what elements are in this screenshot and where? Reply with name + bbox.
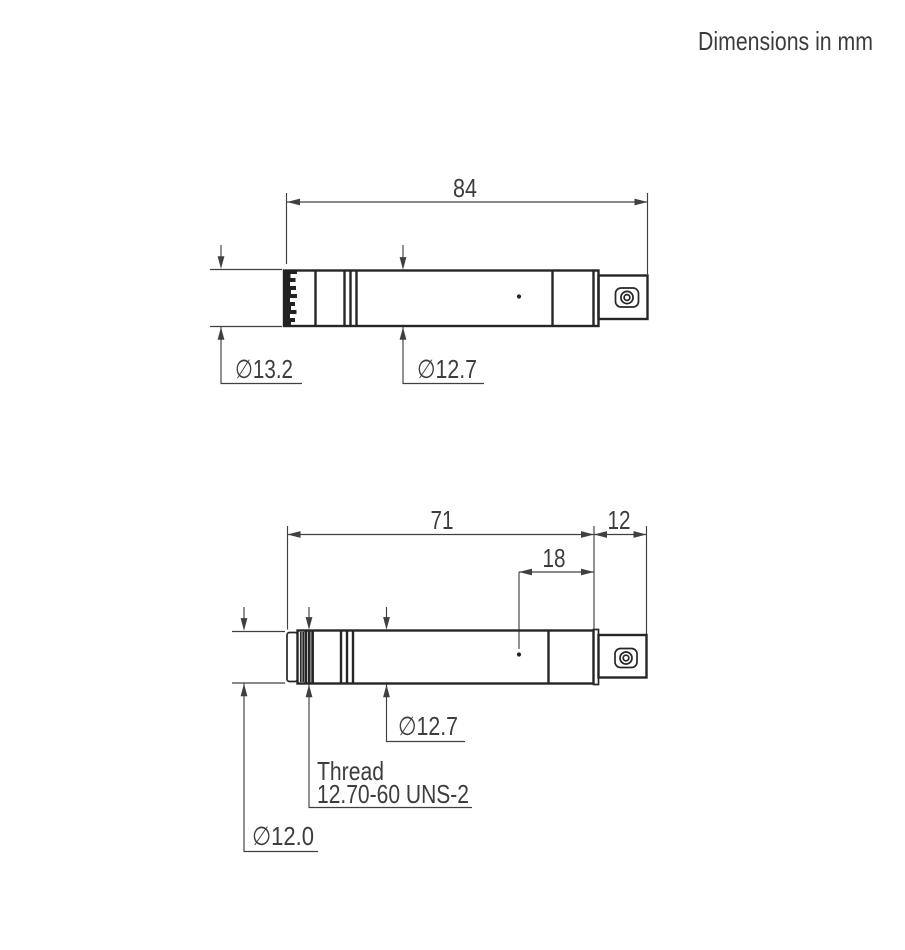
arrowhead-down xyxy=(218,256,225,269)
connector-socket-icon xyxy=(615,649,637,668)
arrowhead-left xyxy=(288,531,301,538)
dimension-value-71: 71 xyxy=(431,505,454,535)
vent-hole-dot xyxy=(517,652,521,656)
arrowhead-right xyxy=(581,531,594,538)
top-view: 84 xyxy=(210,173,648,384)
socket-ring xyxy=(620,652,632,664)
technical-drawing-page: Dimensions in mm 84 xyxy=(0,0,905,950)
socket-pin xyxy=(624,295,630,301)
protection-grid-knurl xyxy=(283,270,297,327)
dimension-value-12: 12 xyxy=(608,505,631,535)
arrowhead-down xyxy=(306,617,313,630)
arrowhead-up xyxy=(218,327,225,340)
bottom-dimension-body-diameter: ∅12.7 xyxy=(383,607,465,742)
dimension-value-84: 84 xyxy=(453,173,477,203)
arrowhead-up xyxy=(306,685,313,698)
top-microphone-body xyxy=(283,270,648,327)
dimension-value-body-diameter: ∅12.7 xyxy=(398,711,458,741)
arrowhead-right xyxy=(634,531,647,538)
socket-pin xyxy=(623,655,629,661)
vent-hole-dot xyxy=(517,294,521,298)
arrowhead-right xyxy=(635,199,648,206)
dimension-value-body-diameter: ∅12.7 xyxy=(417,354,477,384)
arrowhead-left xyxy=(519,569,532,576)
arrowhead-up xyxy=(383,685,390,698)
dimension-value-grid-diameter: ∅13.2 xyxy=(235,354,293,384)
arrowhead-left xyxy=(594,531,607,538)
bottom-dimension-vent-distance: 18 xyxy=(519,543,594,649)
thread-spec: 12.70-60 UNS-2 xyxy=(317,779,469,809)
bottom-microphone-body xyxy=(287,630,647,685)
bottom-view: 71 12 18 xyxy=(232,505,647,852)
arrowhead-down xyxy=(241,618,248,631)
arrowhead-down xyxy=(400,257,407,270)
top-dimension-overall-length: 84 xyxy=(287,173,648,274)
top-dimension-body-diameter: ∅12.7 xyxy=(400,245,484,384)
socket-ring xyxy=(621,291,633,303)
bottom-dimension-lengths: 71 12 xyxy=(288,505,647,634)
units-note: Dimensions in mm xyxy=(698,26,873,56)
arrowhead-up xyxy=(400,327,407,340)
arrowhead-right xyxy=(581,569,594,576)
bottom-dimension-thread: Thread 12.70-60 UNS-2 xyxy=(306,607,472,809)
dimension-value-front-diameter: ∅12.0 xyxy=(252,821,314,851)
dimension-value-18: 18 xyxy=(543,543,566,573)
arrowhead-up xyxy=(241,684,248,697)
arrowhead-down xyxy=(383,617,390,630)
connector-socket-icon xyxy=(616,288,639,307)
connector-housing xyxy=(599,635,647,678)
front-cap xyxy=(287,633,298,682)
arrowhead-left xyxy=(287,199,300,206)
microphone-dimension-drawing: Dimensions in mm 84 xyxy=(0,0,905,950)
connector-housing xyxy=(599,276,648,320)
